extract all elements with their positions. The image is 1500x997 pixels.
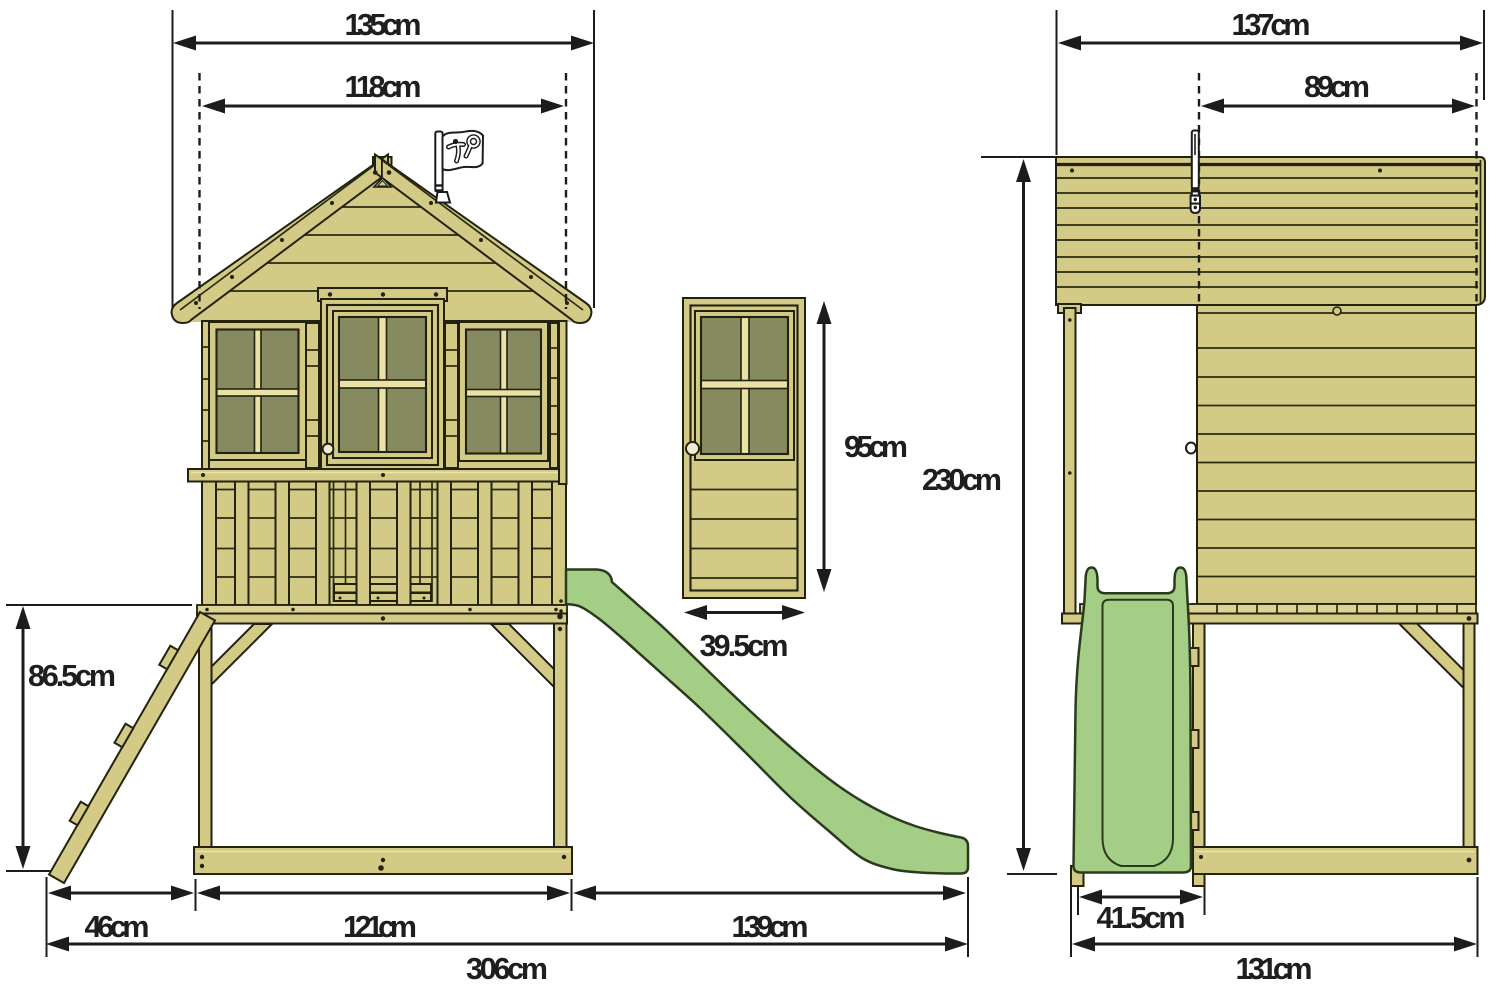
svg-text:46cm: 46cm: [85, 910, 150, 944]
svg-text:230cm: 230cm: [922, 463, 1002, 497]
svg-text:306cm: 306cm: [466, 952, 548, 986]
svg-text:118cm: 118cm: [345, 70, 422, 104]
svg-text:135cm: 135cm: [345, 8, 422, 42]
svg-text:89cm: 89cm: [1304, 70, 1370, 104]
svg-text:121cm: 121cm: [343, 910, 417, 944]
svg-text:39.5cm: 39.5cm: [700, 629, 789, 663]
svg-text:86.5cm: 86.5cm: [28, 659, 116, 693]
svg-text:41.5cm: 41.5cm: [1097, 901, 1186, 935]
svg-text:139cm: 139cm: [732, 910, 809, 944]
svg-text:95cm: 95cm: [844, 430, 908, 464]
svg-text:131cm: 131cm: [1236, 952, 1313, 986]
svg-text:137cm: 137cm: [1232, 8, 1311, 42]
